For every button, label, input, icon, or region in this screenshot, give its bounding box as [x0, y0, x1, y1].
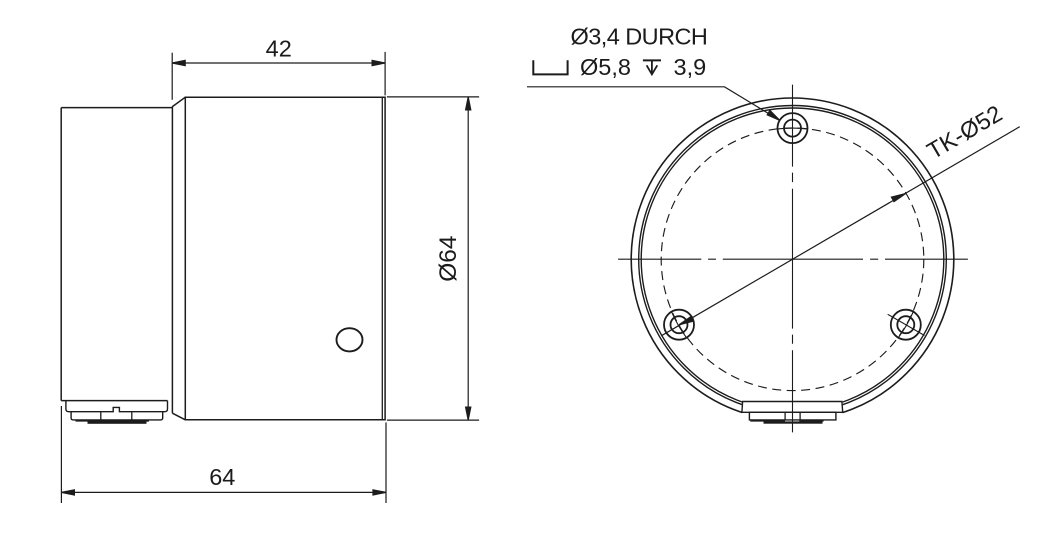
svg-text:3,9: 3,9 — [674, 54, 707, 80]
svg-text:42: 42 — [266, 35, 292, 61]
svg-text:TK-Ø52: TK-Ø52 — [922, 100, 1006, 164]
svg-text:Ø5,8: Ø5,8 — [580, 54, 631, 80]
svg-text:Ø64: Ø64 — [435, 235, 462, 281]
svg-text:64: 64 — [209, 464, 235, 490]
svg-text:Ø3,4 DURCH: Ø3,4 DURCH — [571, 24, 708, 50]
